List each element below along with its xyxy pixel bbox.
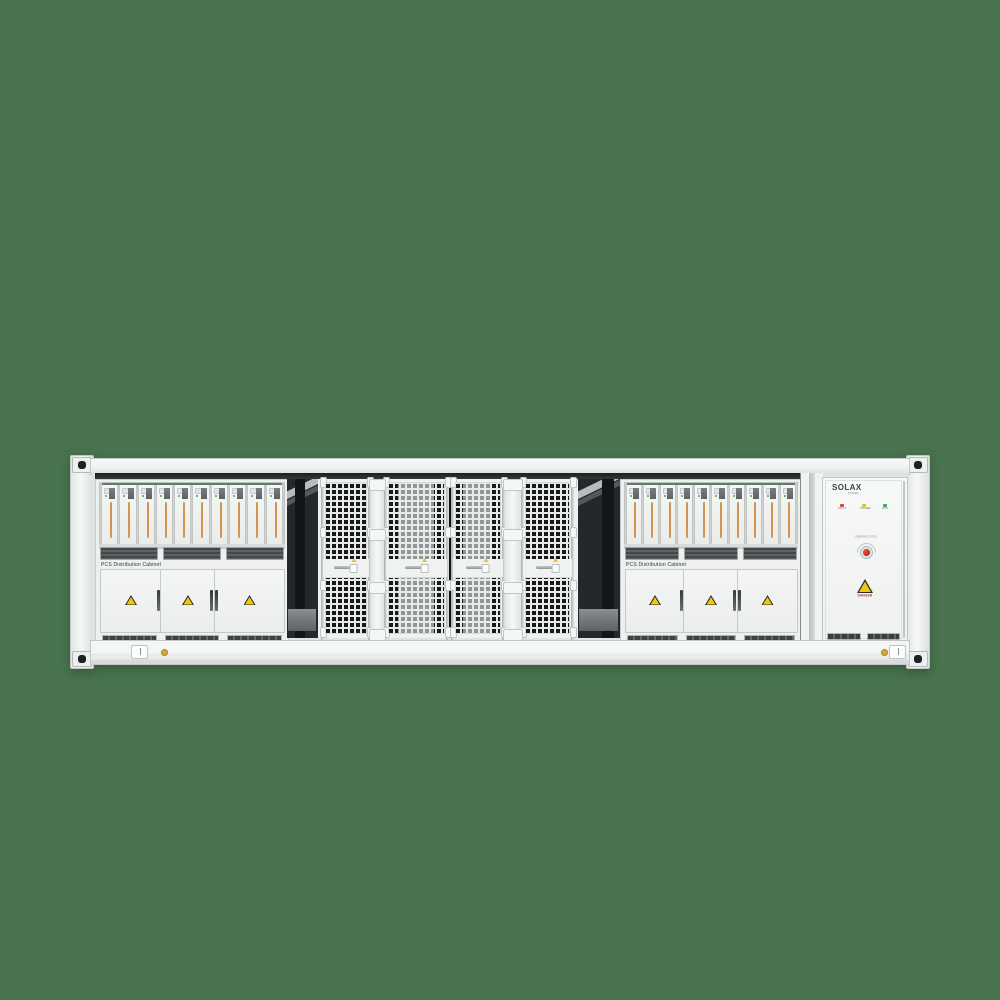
module-display [237,488,243,499]
module-display [182,488,188,499]
module-status-led [160,495,162,497]
corner-casting-top-right [908,457,928,473]
corner-post-right [906,455,930,669]
mesh-panel-top [325,482,367,561]
module-display [219,488,225,499]
module-display [109,488,115,499]
warning-sticker-icon [553,558,558,562]
vent-segment [743,547,797,560]
module-stripe [754,502,756,538]
pcs-module [119,484,136,546]
module-status-led [233,495,235,497]
module-stripe [110,502,112,538]
module-display [770,488,776,499]
rod-keeper [570,477,577,488]
casting-hole [914,655,922,663]
container-interior: PCS Distribution Cabinet [92,473,908,640]
battery-bay [318,479,578,638]
door-handle [215,590,218,611]
ground-stud-right [881,649,888,656]
handle-latch [551,564,559,573]
mesh-panel-top [525,482,570,561]
module-display [256,488,262,499]
hinge-tab [503,479,523,491]
module-stripe [651,502,653,538]
hinge-tab [369,629,386,641]
status-led: RUN [875,504,895,514]
module-display [274,488,280,499]
module-status-led [251,495,253,497]
pcs-module [247,484,264,546]
led-indicators: FAULTPOWERRUN [832,504,895,514]
cabinet-door [737,569,798,633]
module-stripe [669,502,671,538]
brand-logo: SOLAX POWER [832,484,872,492]
emergency-stop-label: EMERGENCY STOP [855,536,876,538]
pcs-module [211,484,228,546]
module-status-led [142,495,144,497]
battery-storage-container: PCS Distribution Cabinet [70,455,930,668]
pcs-module [677,484,693,546]
cabinet-door [100,569,162,633]
module-stripe [147,502,149,538]
warning-triangle-icon [857,579,873,593]
pcs-module-bank [99,482,285,549]
busbar-block [579,609,618,631]
rod-keeper [570,627,577,638]
module-stripe [634,502,636,538]
corner-post-left [70,455,94,669]
render-gap-line [102,483,282,485]
busbar-block [288,609,316,631]
door-mid-bar [386,559,447,577]
door-hinge-line [903,481,905,638]
cabinet-door [625,569,685,633]
emergency-stop: EMERGENCY STOP [854,539,878,563]
module-status-led [664,495,666,497]
brand-subtext: POWER [848,492,859,495]
warning-triangle-icon [182,595,194,605]
module-status-led [750,495,752,497]
module-status-led [698,495,700,497]
vent-slot [867,633,901,640]
scene: PCS Distribution Cabinet [0,0,1000,1000]
led-label: FAULT [838,507,846,510]
pcs-cabinet-left: PCS Distribution Cabinet [95,479,289,642]
cabinet-door [214,569,285,633]
door-mullion [371,479,384,638]
module-stripe [720,502,722,538]
pcs-module [763,484,779,546]
pcs-module [660,484,676,546]
led-label: POWER [860,507,868,510]
pcs-cabinet-label: PCS Distribution Cabinet [626,561,686,569]
module-status-led [196,495,198,497]
status-led: POWER [854,504,874,514]
module-status-led [681,495,683,497]
module-display [736,488,742,499]
door-handle [733,590,736,611]
module-status-led [630,495,632,497]
module-display [719,488,725,499]
module-status-led [215,495,217,497]
mesh-panel-top [455,482,501,561]
module-stripe [256,502,258,538]
module-stripe [275,502,277,538]
pcs-module [192,484,209,546]
vent-grille [625,547,797,560]
vent-segment [163,547,221,560]
module-stripe [128,502,130,538]
brand-name: SOLAX [832,484,872,492]
casting-hole [78,461,86,469]
mesh-panel-top [388,482,445,561]
module-status-led [647,495,649,497]
module-status-led [270,495,272,497]
corner-casting-bottom-right [908,651,928,667]
module-status-led [767,495,769,497]
module-stripe [165,502,167,538]
handle-latch [350,564,358,573]
casting-hole [914,461,922,469]
emergency-stop-button [863,549,870,556]
module-display [684,488,690,499]
vent-slot [827,633,861,640]
module-display [164,488,170,499]
danger-warning: DANGER [843,579,887,601]
module-stripe [238,502,240,538]
warning-triangle-icon [244,595,256,605]
mesh-door [521,479,574,638]
pcs-module [780,484,796,546]
pcs-module [626,484,642,546]
bottom-rail [90,640,910,665]
pcs-cabinet-right: PCS Distribution Cabinet [620,479,802,642]
pcs-cabinet-label: PCS Distribution Cabinet [101,561,161,569]
warning-sticker-icon [484,558,489,562]
module-status-led [784,495,786,497]
door-mullion [505,479,521,638]
module-stripe [183,502,185,538]
module-stripe [737,502,739,538]
module-stripe [220,502,222,538]
module-stripe [771,502,773,538]
mesh-door [451,479,505,638]
vent-segment [625,547,679,560]
handle-latch [420,564,428,573]
led-label: RUN [881,507,889,510]
hinge-tab [369,582,386,594]
pcs-module [711,484,727,546]
warning-sticker-icon [352,558,357,562]
module-display [128,488,134,499]
warning-triangle-icon [705,595,717,605]
pcs-module [174,484,191,546]
module-display [753,488,759,499]
pcs-module [156,484,173,546]
mesh-panel-bottom [325,577,367,634]
module-display [201,488,207,499]
module-status-led [178,495,180,497]
warning-triangle-icon [649,595,661,605]
joiner-channel [809,473,815,640]
cabinet-door [160,569,216,633]
exclamation-mark [864,585,866,590]
mesh-door [384,479,449,638]
warning-sticker-icon [422,558,427,562]
module-stripe [201,502,203,538]
service-socket-left [131,645,148,659]
module-display [701,488,707,499]
vent-grille [100,547,284,560]
pcs-doors [100,569,283,633]
module-display [667,488,673,499]
handle-latch [482,564,490,573]
ground-stud-left [161,649,168,656]
control-cabinet: SOLAX POWER FAULTPOWERRUN EMERGENCY STOP… [822,477,908,642]
hinge-tab [503,629,523,641]
door-handle [210,590,213,611]
pcs-module [229,484,246,546]
door-handle [738,590,741,611]
module-stripe [788,502,790,538]
cabinet-vents [827,633,900,640]
module-display [787,488,793,499]
pcs-module [138,484,155,546]
render-gap-line [627,483,795,485]
vent-segment [226,547,284,560]
corner-casting-top-left [72,457,92,473]
rod-keeper [570,527,577,538]
module-stripe [703,502,705,538]
module-stripe [686,502,688,538]
door-mid-bar [323,559,369,577]
cabinet-door [683,569,739,633]
casting-hole [78,655,86,663]
vent-segment [100,547,158,560]
frame-gap-left [287,479,318,638]
hinge-tab [369,529,386,541]
pcs-module-bank [624,482,798,549]
hinge-tab [369,479,386,491]
vent-segment [684,547,738,560]
pcs-module [266,484,283,546]
pcs-module [694,484,710,546]
door-mid-bar [453,559,503,577]
pcs-module [729,484,745,546]
frame-joiner [800,473,823,640]
warning-triangle-icon [125,595,137,605]
rod-keeper [570,580,577,591]
mesh-panel-bottom [455,577,501,634]
mesh-door [321,479,371,638]
service-socket-right [889,645,906,659]
door-handle [157,590,160,611]
module-status-led [715,495,717,497]
module-status-led [733,495,735,497]
warning-triangle-icon [762,595,774,605]
module-status-led [123,495,125,497]
hinge-tab [503,582,523,594]
module-display [146,488,152,499]
danger-label: DANGER [855,594,875,597]
pcs-module [101,484,118,546]
door-mid-bar [523,559,572,577]
door-handle [680,590,683,611]
frame-gap-right [578,479,620,638]
hinge-tab [503,529,523,541]
pcs-doors [625,569,796,633]
pcs-module [643,484,659,546]
mesh-panel-bottom [388,577,445,634]
module-display [633,488,639,499]
pcs-module [746,484,762,546]
mesh-panel-bottom [525,577,570,634]
corner-casting-bottom-left [72,651,92,667]
status-led: FAULT [832,504,852,514]
module-status-led [105,495,107,497]
module-display [650,488,656,499]
